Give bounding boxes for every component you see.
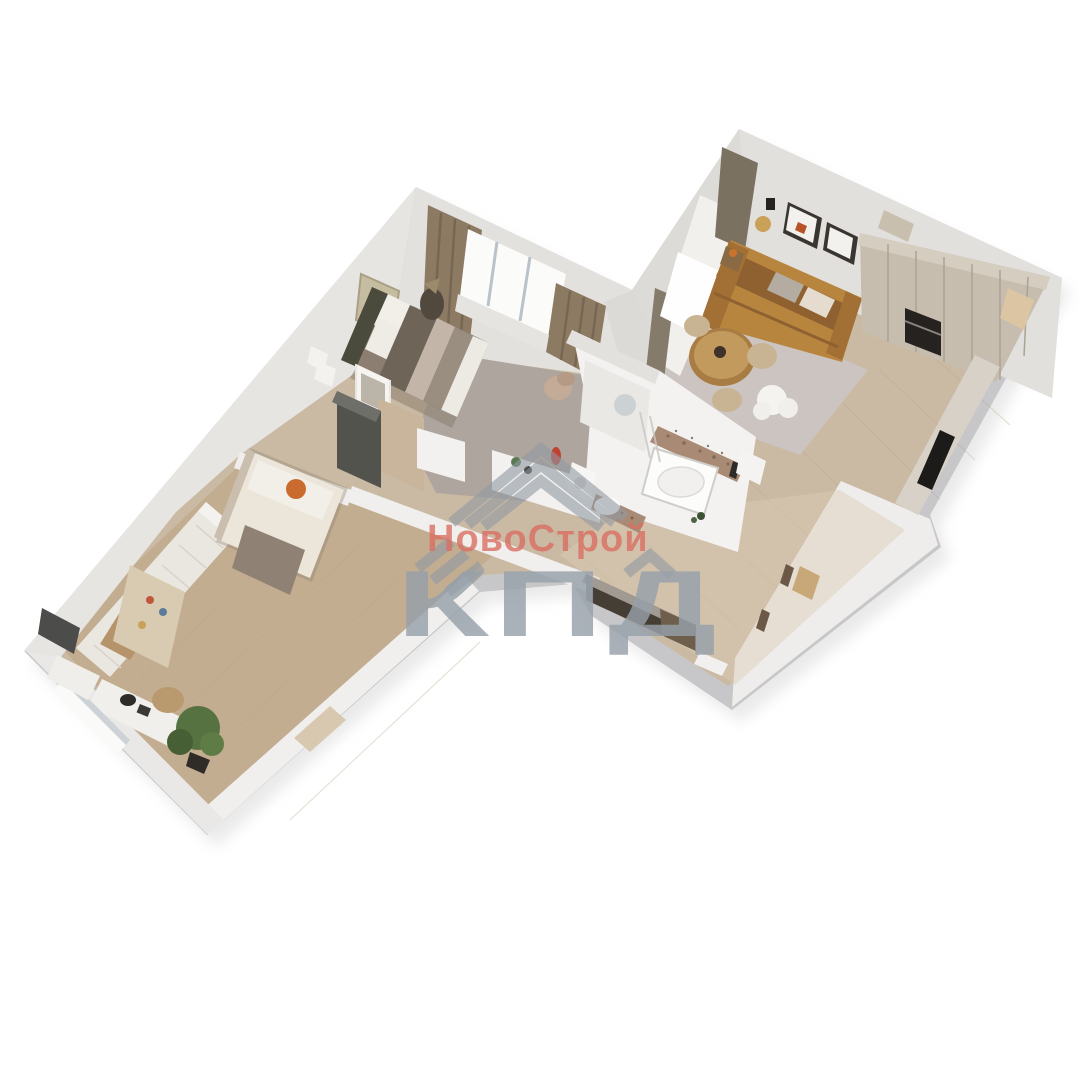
svg-text:КПД: КПД [396,551,721,656]
